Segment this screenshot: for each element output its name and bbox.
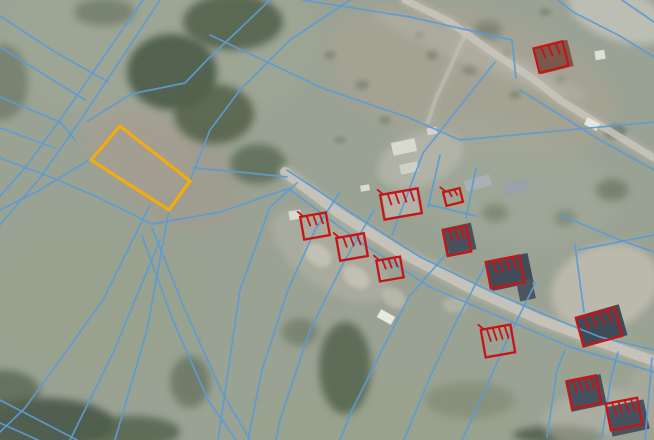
terrain-patch <box>379 116 391 124</box>
terrain-patch <box>319 322 371 414</box>
terrain-patch <box>443 297 467 313</box>
map-canvas[interactable] <box>0 0 654 440</box>
terrain-patch <box>425 382 515 418</box>
terrain-patch <box>230 144 286 184</box>
terrain-patch <box>282 318 318 346</box>
terrain-patch <box>174 84 254 144</box>
terrain-patch <box>170 356 210 408</box>
terrain-patch <box>509 91 521 99</box>
terrain-patch <box>426 50 438 60</box>
map-viewport[interactable] <box>0 0 654 440</box>
terrain-patch <box>355 80 369 90</box>
terrain-patch <box>334 136 346 144</box>
terrain-patch <box>482 204 508 222</box>
terrain-patch <box>596 179 628 201</box>
terrain-patch <box>539 8 551 16</box>
terrain-patch <box>324 51 336 59</box>
shed-structure <box>594 50 605 61</box>
